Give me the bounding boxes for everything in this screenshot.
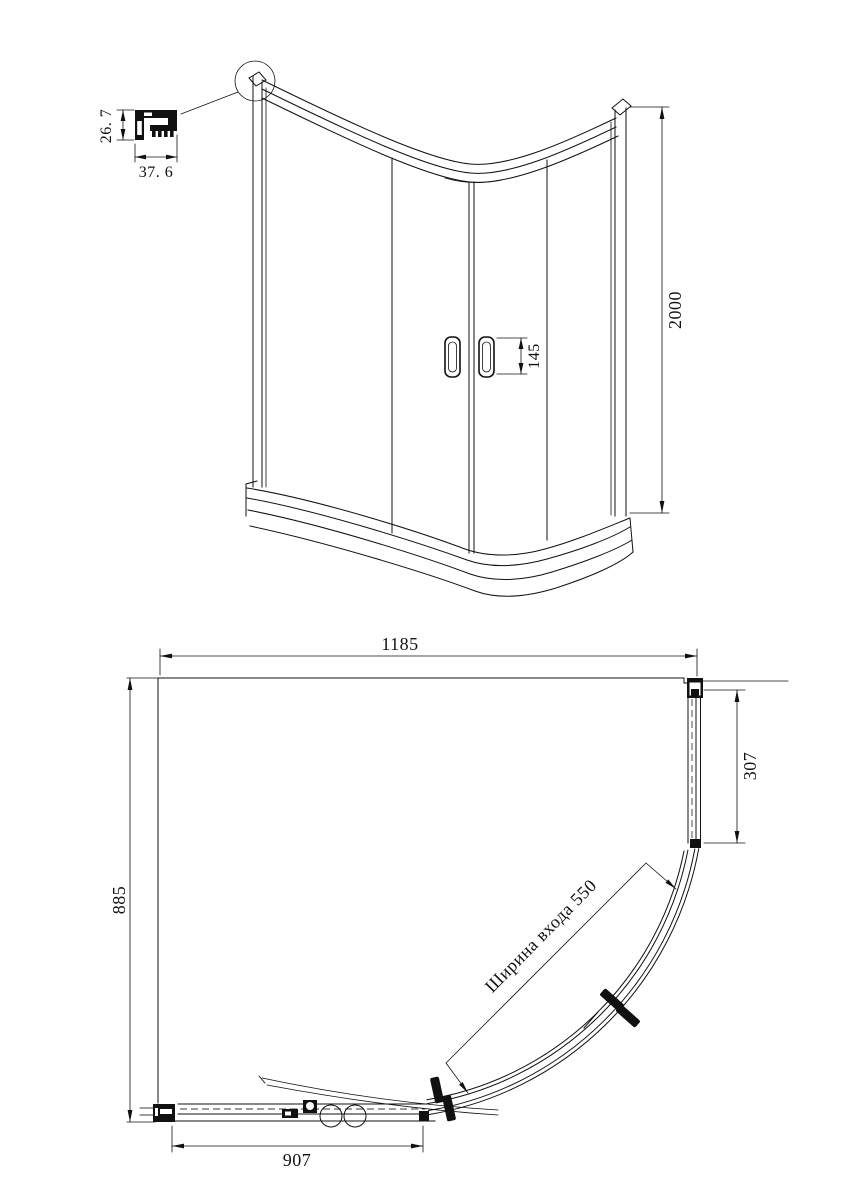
wall-profile-slot bbox=[155, 1108, 158, 1116]
dim-side-panel: 307 bbox=[704, 690, 760, 843]
arrowhead bbox=[121, 110, 126, 121]
door-handle-plan bbox=[430, 1076, 444, 1103]
technical-drawing: 26. 7 37. 6 bbox=[0, 0, 848, 1200]
tray-ledge-curve bbox=[247, 498, 630, 566]
dim-label-overall-height: 2000 bbox=[665, 291, 685, 329]
right-door-handle-grip bbox=[483, 342, 491, 372]
roller-clamp-slot bbox=[285, 1112, 291, 1116]
top-rail-edge bbox=[262, 80, 616, 164]
elevation-view: 26. 7 37. 6 bbox=[98, 61, 685, 596]
arrowhead bbox=[172, 1144, 184, 1149]
profile-left-slot bbox=[137, 121, 142, 135]
dim-profile-height: 26. 7 bbox=[98, 109, 134, 144]
dim-label-side-panel: 307 bbox=[740, 752, 760, 781]
door-glass-arc bbox=[428, 850, 688, 1103]
dim-plan-depth: 885 bbox=[109, 678, 158, 1122]
arrowhead bbox=[128, 678, 133, 690]
panel-end-bracket bbox=[690, 839, 701, 848]
arrowhead bbox=[166, 155, 177, 160]
dim-label-front-panel: 907 bbox=[283, 1150, 312, 1170]
arrowhead bbox=[660, 107, 665, 119]
door-track-arc bbox=[429, 849, 695, 1110]
roller-bracket-hole bbox=[306, 1102, 314, 1110]
profile-bottom-bar bbox=[150, 125, 177, 131]
drawing-sheet: 26. 7 37. 6 bbox=[0, 0, 848, 1200]
arrowhead bbox=[121, 129, 126, 140]
arc-handles bbox=[430, 988, 641, 1122]
arrowhead bbox=[735, 831, 740, 843]
wall-profile-hook bbox=[691, 689, 699, 698]
handle-bracket-tail bbox=[584, 1012, 598, 1028]
dim-overall-height: 2000 bbox=[630, 107, 685, 513]
dimension-line bbox=[446, 863, 676, 1093]
arrowhead bbox=[735, 690, 740, 702]
door-overlap-edge bbox=[267, 1085, 498, 1115]
door-glass-arc bbox=[427, 851, 684, 1100]
left-door-handle bbox=[445, 337, 460, 377]
walls bbox=[140, 678, 788, 1115]
profile-tooth bbox=[164, 131, 168, 137]
roller-wheel bbox=[320, 1105, 342, 1127]
side-panel-right bbox=[688, 698, 701, 848]
front-panel-bottom bbox=[173, 1100, 435, 1127]
door-track-arc bbox=[429, 849, 698, 1115]
tray-left-step bbox=[246, 481, 257, 484]
enclosure-frame bbox=[249, 72, 631, 553]
arrowhead bbox=[519, 338, 524, 349]
corner-profile-bottom-left bbox=[153, 1104, 175, 1122]
tray-skirt-curve bbox=[250, 526, 633, 596]
sliding-door-arcs bbox=[259, 849, 699, 1115]
dim-label-handle-height: 145 bbox=[526, 343, 543, 369]
right-door-handle bbox=[479, 337, 494, 377]
arrowhead bbox=[411, 1144, 423, 1149]
dim-handle-height: 145 bbox=[497, 338, 543, 374]
panel-end-bracket bbox=[419, 1111, 429, 1121]
arrowhead bbox=[519, 363, 524, 374]
corner-profile-top-right bbox=[687, 678, 703, 698]
door-handle-plan bbox=[615, 1004, 640, 1028]
top-wall-line bbox=[158, 678, 687, 683]
detail-circle bbox=[235, 61, 275, 101]
profile-tooth bbox=[158, 131, 162, 137]
dim-label-entrance-width: Ширина входа 550 bbox=[481, 875, 601, 996]
top-rail-edge bbox=[262, 98, 618, 182]
dim-label-plan-width: 1185 bbox=[381, 634, 418, 654]
arrowhead bbox=[128, 1110, 133, 1122]
arrowhead bbox=[660, 501, 665, 513]
tray-skirt-curve bbox=[248, 510, 632, 580]
dim-front-panel: 907 bbox=[172, 1126, 423, 1170]
dim-label-profile-height: 26. 7 bbox=[98, 109, 115, 144]
profile-tooth bbox=[152, 131, 156, 137]
detail-callout bbox=[181, 61, 275, 114]
roller-wheel bbox=[344, 1105, 366, 1127]
detail-leader-line bbox=[181, 92, 238, 114]
tray-right-edge bbox=[630, 518, 633, 552]
dim-label-plan-depth: 885 bbox=[109, 886, 129, 915]
arrowhead bbox=[160, 654, 172, 659]
profile-cross-section bbox=[135, 110, 177, 140]
door-overlap-end-cap bbox=[259, 1076, 265, 1083]
dim-profile-width: 37. 6 bbox=[135, 135, 177, 181]
dim-entrance-width: Ширина входа 550 bbox=[446, 863, 676, 1093]
profile-tooth bbox=[170, 131, 174, 137]
dim-plan-width: 1185 bbox=[160, 634, 697, 676]
shower-tray bbox=[246, 481, 633, 596]
wall-profile-slot bbox=[160, 1109, 172, 1114]
dim-label-profile-width: 37. 6 bbox=[139, 164, 174, 181]
arrowhead bbox=[685, 654, 697, 659]
tray-ledge-curve bbox=[247, 488, 630, 555]
left-post-cap bbox=[249, 72, 266, 86]
arrowhead bbox=[135, 155, 146, 160]
left-door-handle-grip bbox=[449, 342, 457, 372]
plan-view: 1185 885 307 907 bbox=[109, 634, 788, 1170]
